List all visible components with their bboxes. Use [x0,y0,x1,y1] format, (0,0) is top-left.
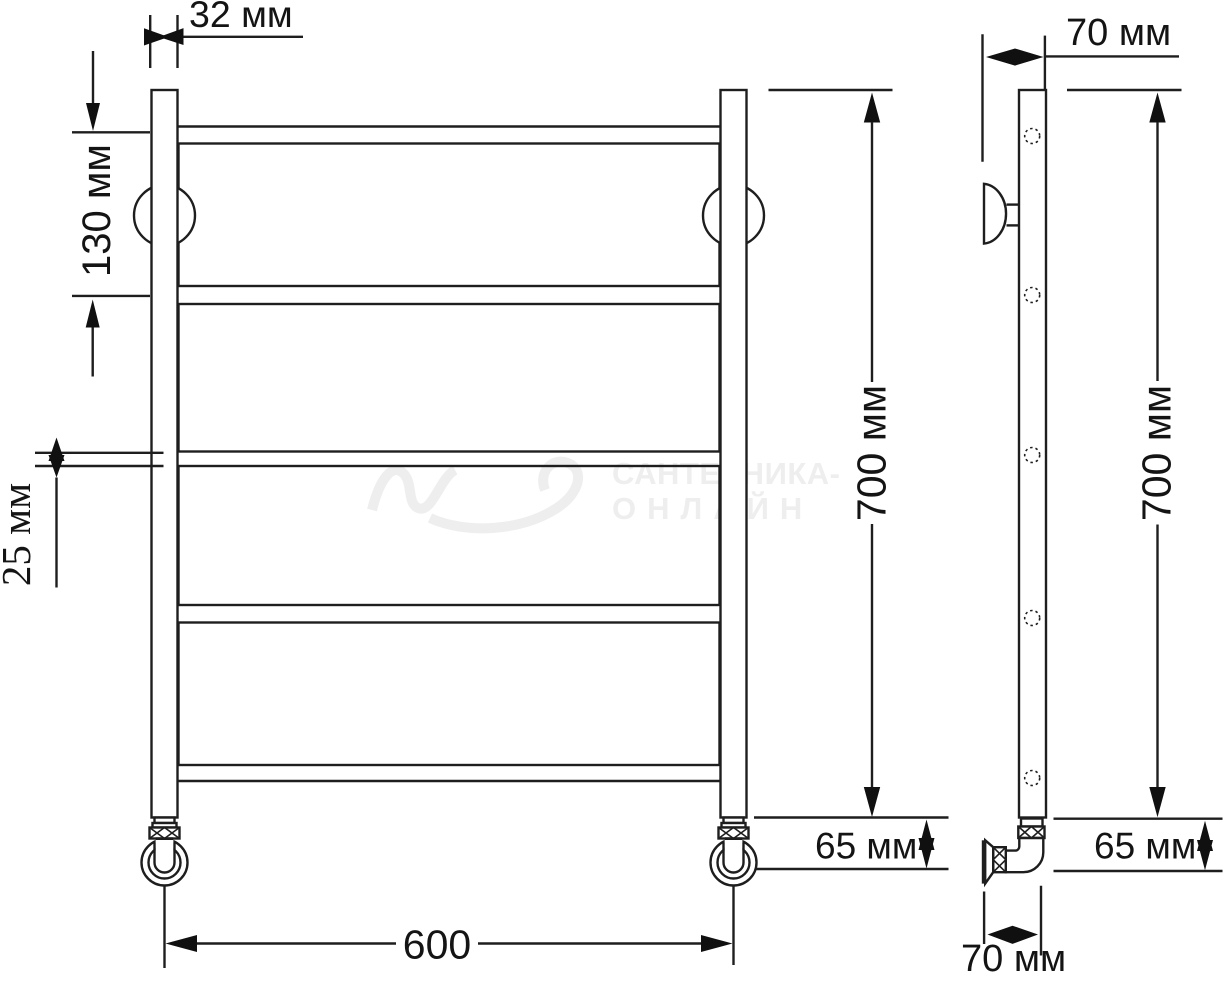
svg-text:65 мм: 65 мм [1094,826,1196,867]
svg-text:700 мм: 700 мм [1134,385,1180,521]
svg-text:32 мм: 32 мм [189,0,293,35]
svg-text:70 мм: 70 мм [961,938,1066,980]
svg-text:600: 600 [403,922,471,968]
svg-text:70 мм: 70 мм [1066,12,1171,54]
svg-text:25 мм: 25 мм [0,483,39,586]
svg-text:65 мм: 65 мм [815,826,917,867]
svg-text:130 мм: 130 мм [75,144,119,277]
svg-text:700 мм: 700 мм [849,385,895,521]
svg-text:ОНЛАЙН: ОНЛАЙН [612,490,813,526]
